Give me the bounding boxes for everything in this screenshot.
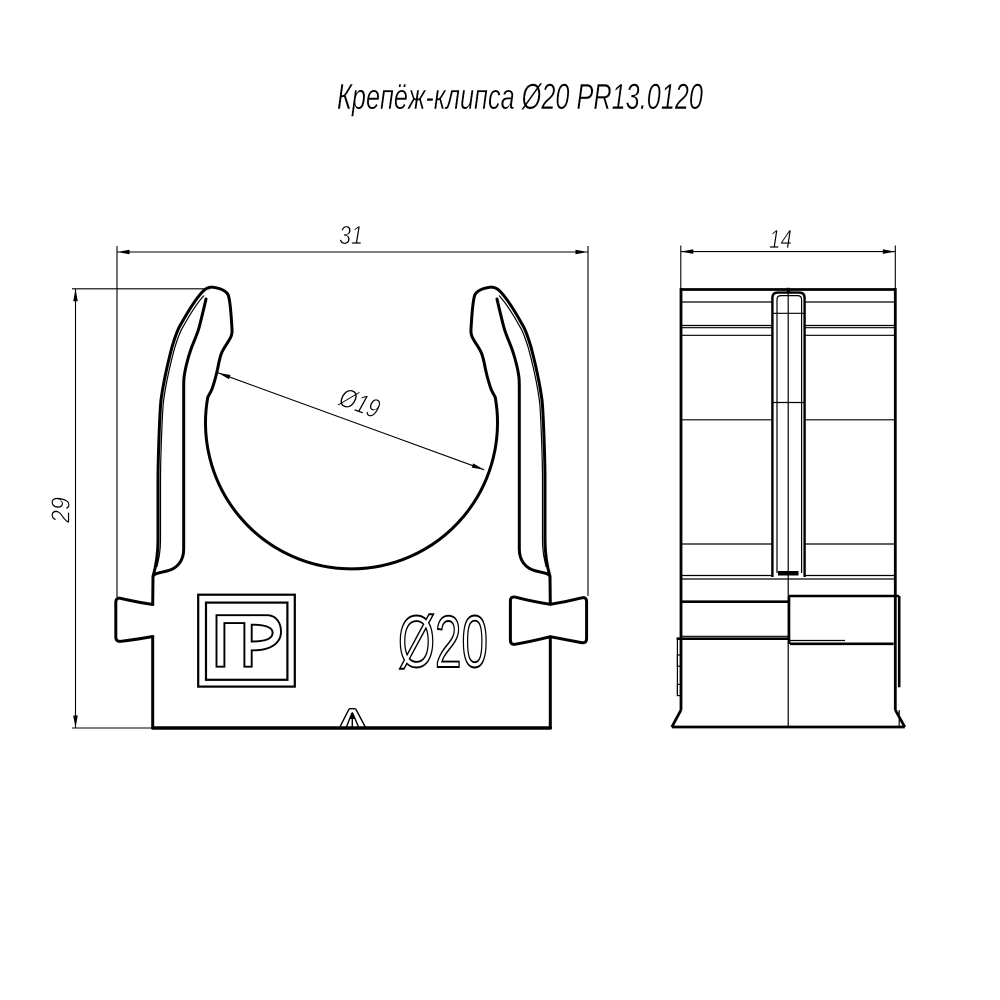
svg-text:Крепёж-клипса Ø20 PR13.0120: Крепёж-клипса Ø20 PR13.0120 — [337, 76, 703, 117]
svg-text:Ø20: Ø20 — [398, 602, 488, 683]
svg-text:29: 29 — [46, 497, 76, 524]
svg-text:14: 14 — [769, 224, 792, 254]
svg-text:31: 31 — [339, 220, 363, 250]
